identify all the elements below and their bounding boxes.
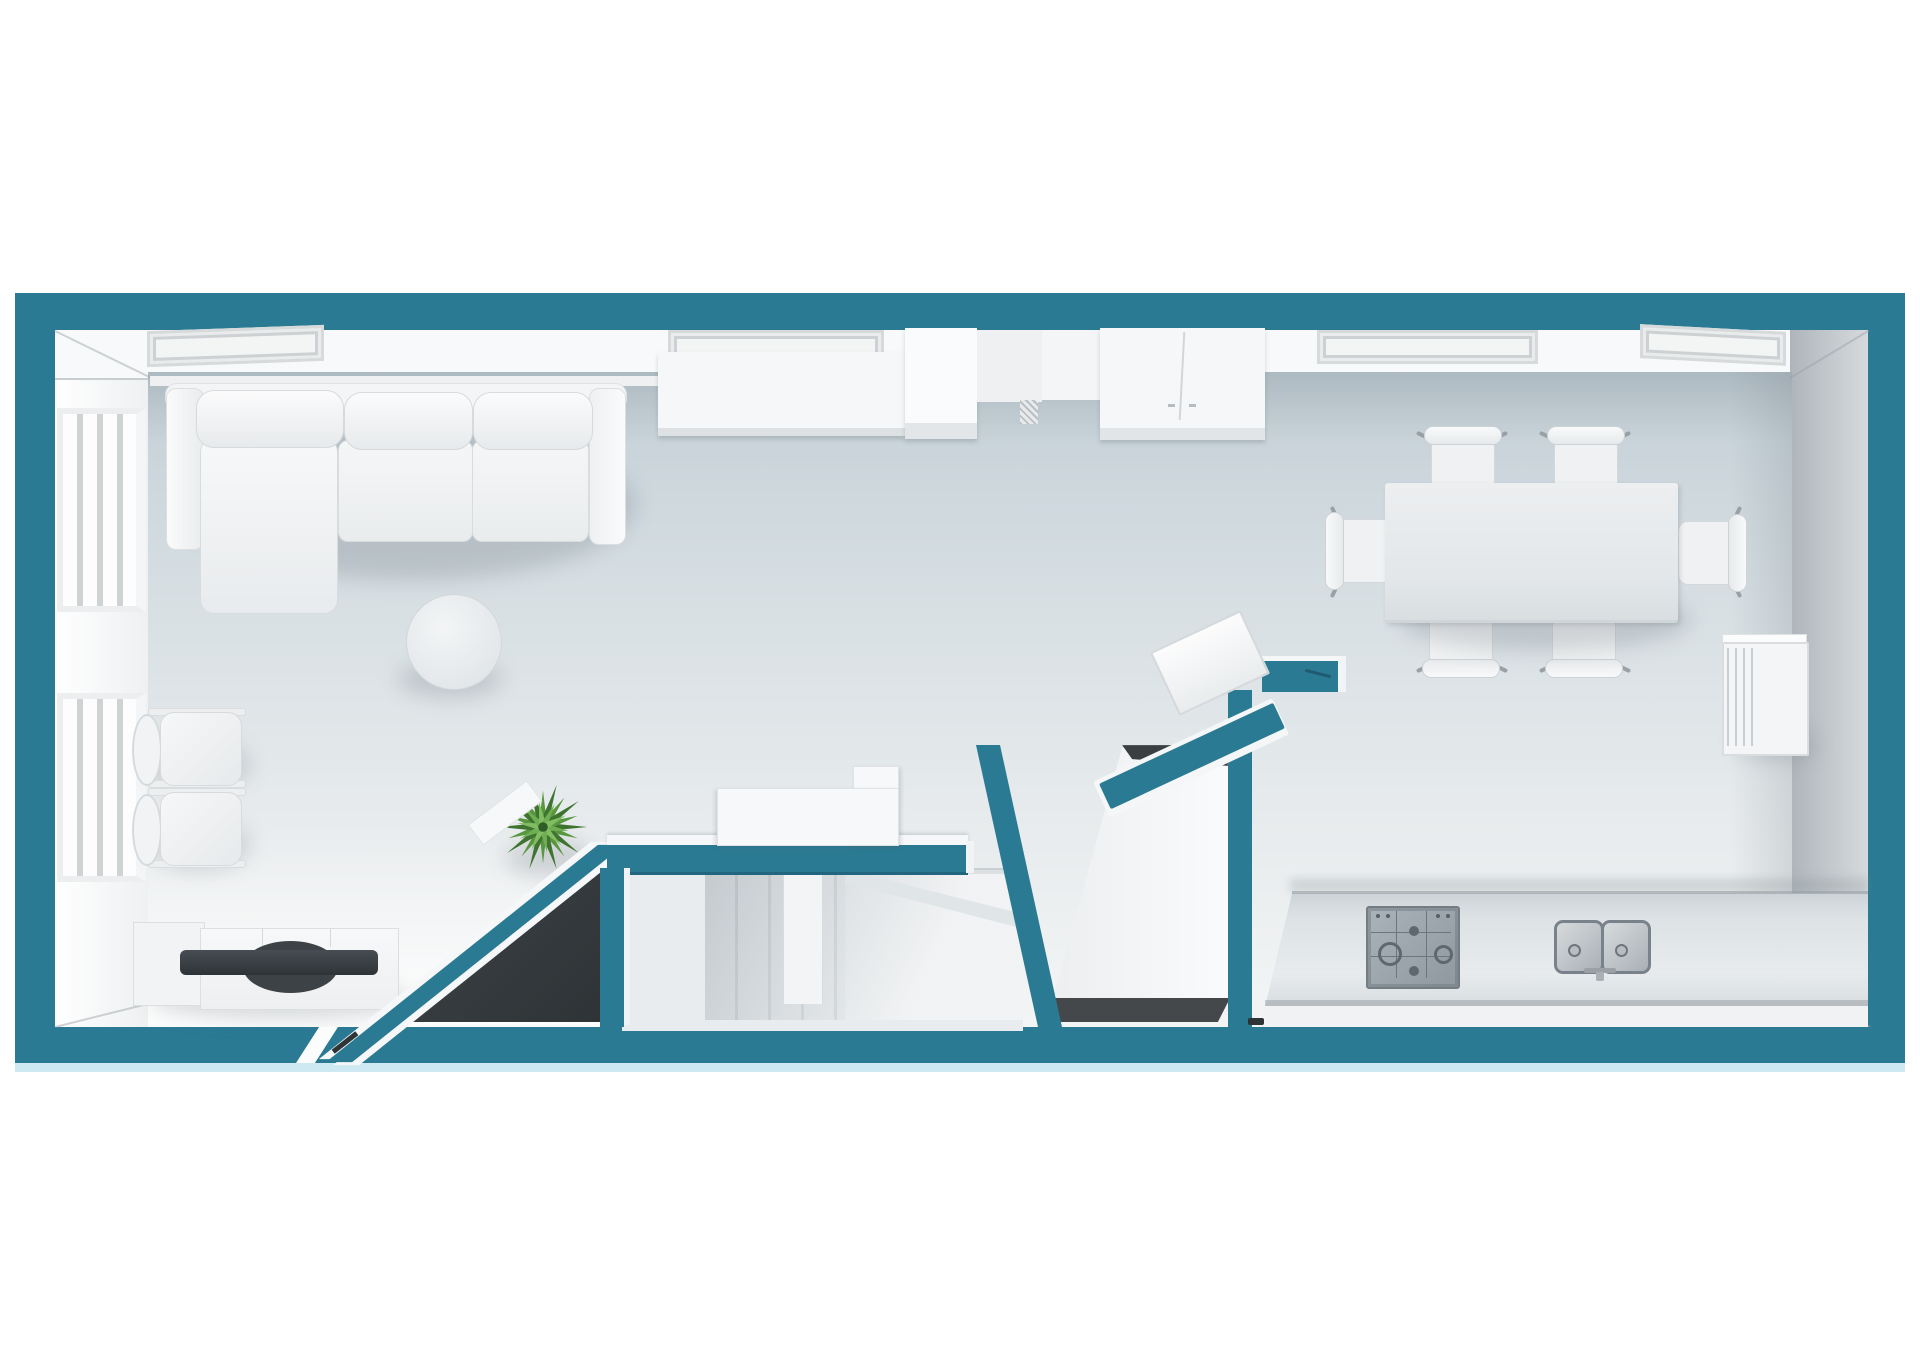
top-wall-window-frame-1 xyxy=(147,325,324,367)
kitchen-counter-back-edge xyxy=(1292,891,1868,894)
stair-cabinet-main xyxy=(717,788,899,846)
stair-vwall-inner-edge xyxy=(624,868,630,1025)
sofa-seat-middle xyxy=(338,440,473,542)
hob-knob-2 xyxy=(1386,914,1390,918)
dining-chair-backrest xyxy=(1424,426,1502,445)
partition-stub-endcap xyxy=(1338,659,1346,692)
tv-screen-bar xyxy=(180,950,378,975)
faucet-spout xyxy=(1596,972,1604,981)
coffee-table xyxy=(406,594,502,690)
sofa-seat-right xyxy=(472,440,589,542)
right-wall-cabinet xyxy=(1722,642,1809,756)
dining-table xyxy=(1385,483,1678,623)
wall-cabinet-long xyxy=(658,352,905,436)
sink-drain-left xyxy=(1568,944,1581,957)
dining-chair-backrest xyxy=(1728,514,1747,592)
sofa-chaise-seat xyxy=(200,438,338,614)
sink-drain-right xyxy=(1615,944,1628,957)
slab-edge-strip xyxy=(15,1063,1905,1072)
cabinet-door-handle-left xyxy=(1168,404,1175,407)
side-chair-2-seat xyxy=(160,792,242,866)
floorplan-canvas xyxy=(0,0,1920,1358)
hob-burner-large xyxy=(1378,942,1402,966)
kitchen-counter-front-face xyxy=(1265,1006,1868,1027)
cabinet-door-handle-right xyxy=(1189,404,1196,407)
dining-chair-backrest xyxy=(1422,659,1500,678)
wall-cabinet-recessed xyxy=(977,330,1042,402)
stair-hwall-teal xyxy=(607,845,968,875)
stair-hwall-endcap xyxy=(966,841,974,873)
sofa-armrest-right xyxy=(589,388,626,545)
tv-console-seam-1 xyxy=(262,929,263,947)
wall-cabinet-connector xyxy=(1042,330,1100,400)
hob-burner-small-bottom xyxy=(1409,966,1419,976)
side-chair-2-backrest xyxy=(132,794,162,866)
hob-knob-3 xyxy=(1436,914,1440,918)
dining-chair-backrest xyxy=(1325,512,1344,590)
double-sink xyxy=(1552,918,1651,986)
door-threshold-dash xyxy=(1248,1018,1264,1025)
cabinet-vent-grille xyxy=(1020,400,1038,424)
tv-console-seam-2 xyxy=(330,929,331,947)
hob-knob-1 xyxy=(1376,914,1380,918)
hob-burner-right xyxy=(1434,945,1453,964)
side-chair-1-backrest xyxy=(132,714,162,786)
stair-vwall-teal xyxy=(600,868,624,1027)
side-chair-1-seat xyxy=(160,712,242,786)
stair-pillar xyxy=(783,870,823,1004)
stair-steps-shading xyxy=(705,870,1023,1020)
wall-cabinet-tall xyxy=(905,328,977,439)
top-wall-window-frame-3 xyxy=(1317,330,1538,364)
hob-knob-4 xyxy=(1446,914,1450,918)
sofa-back-cushion-2 xyxy=(344,392,473,450)
gas-hob xyxy=(1366,906,1460,989)
dining-chair-backrest xyxy=(1545,659,1623,678)
right-cabinet-shelf-lines xyxy=(1727,648,1753,746)
sofa-back-cushion-3 xyxy=(473,392,593,450)
dining-chair-right xyxy=(1677,508,1747,596)
left-window-1 xyxy=(57,408,146,612)
side-chair-2 xyxy=(132,786,244,870)
side-chair-1 xyxy=(132,706,244,790)
hob-burner-small-top xyxy=(1409,926,1419,936)
dining-chair-backrest xyxy=(1547,426,1625,445)
closet-dark-gap-bottom xyxy=(1045,995,1235,1025)
hob-grid-vline-2 xyxy=(1426,911,1427,978)
sofa-back-cushion-1 xyxy=(196,390,344,448)
